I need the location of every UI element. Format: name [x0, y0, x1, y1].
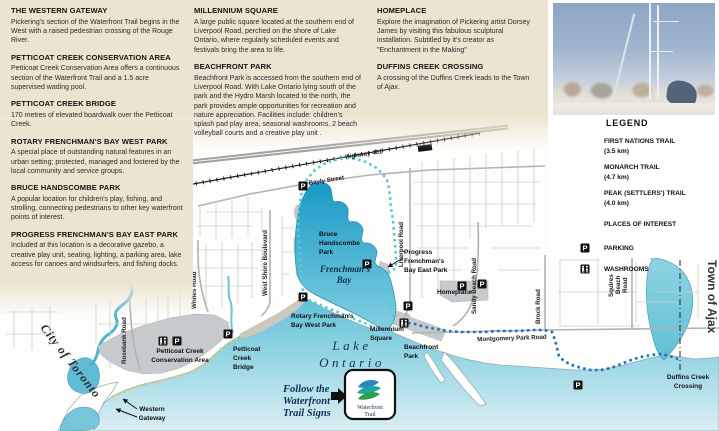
article-body: A large public square located at the sou… [194, 18, 361, 55]
homeplace-label: Homeplace [437, 289, 472, 296]
legend-trail-name: MONARCH TRAIL [604, 164, 660, 171]
article-millennium-square: MILLENNIUM SQUARE A large public square … [194, 6, 361, 55]
sailboat-spreader-icon [653, 21, 679, 22]
article-petticoat-conservation: PETTICOAT CREEK CONSERVATION AREA Pettic… [11, 53, 183, 93]
parking-petticoat-bridge [224, 330, 233, 339]
right-panel: LEGEND FIRST NATIONS TRAIL (3.5 km) MONA… [548, 0, 719, 258]
washrooms-petticoat [159, 337, 168, 346]
article-title: HOMEPLACE [377, 6, 537, 16]
articles-column-east: HOMEPLACE Explore the imagination of Pic… [377, 6, 537, 92]
legend-trail-distance: (4.0 km) [604, 200, 629, 207]
montgomery-park-road-label: Montgomery Park Road [477, 334, 547, 343]
rotary-park-label-1: Rotary Frenchman's [291, 313, 354, 320]
article-title: PROGRESS FRENCHMAN'S BAY EAST PARK [11, 230, 183, 240]
highway-401-label: Highway 401 [345, 148, 384, 161]
article-body: Explore the imagination of Pickering art… [377, 18, 537, 55]
trail-sign-text-2: Trail [364, 412, 376, 418]
frenchmans-bay-label-1: Frenchman's [319, 264, 371, 274]
article-progress-park: PROGRESS FRENCHMAN'S BAY EAST PARK Inclu… [11, 230, 183, 270]
parking-lakeshore-east [574, 381, 583, 390]
articles-column-west: THE WESTERN GATEWAY Pickering's section … [11, 6, 183, 269]
article-duffins-crossing: DUFFINS CREEK CROSSING A crossing of the… [377, 62, 537, 92]
rosebank-road-label: Rosebank Road [121, 317, 128, 364]
marina-photo [553, 3, 715, 115]
follow-sign-text-1: Follow the [282, 384, 330, 395]
follow-sign-text-2: Waterfront [283, 396, 331, 407]
article-body: Pickering's section of the Waterfront Tr… [11, 18, 183, 46]
progress-park-label-2: Frenchman's [404, 258, 445, 265]
brock-road-label: Brock Road [535, 289, 542, 324]
duffins-crossing-label-2: Crossing [674, 383, 702, 390]
article-petticoat-bridge: PETTICOAT CREEK BRIDGE 170 metres of ele… [11, 99, 183, 129]
article-body: A special place of outstanding natural f… [11, 148, 183, 176]
article-body: Included at this location is a decorativ… [11, 241, 183, 269]
waterfront-trail-sign: Waterfront Trail [345, 370, 395, 419]
western-gateway-label-2: Gateway [139, 415, 166, 422]
legend-places-label: PLACES OF INTEREST [604, 220, 676, 230]
millennium-square-label-1: Millennium [370, 326, 404, 333]
legend: LEGEND FIRST NATIONS TRAIL (3.5 km) MONA… [548, 112, 719, 284]
article-bruce-park: BRUCE HANDSCOMBE PARK A popular location… [11, 183, 183, 223]
legend-row-peak: PEAK (SETTLERS') TRAIL (4.0 km) [550, 189, 717, 208]
legend-trail-name: FIRST NATIONS TRAIL [604, 138, 675, 145]
article-title: ROTARY FRENCHMAN'S BAY WEST PARK [11, 137, 183, 147]
beachfront-park-label-2: Park [404, 353, 418, 360]
petticoat-bridge-label-3: Bridge [233, 364, 254, 371]
lake-ontario-label-2: Ontario [319, 355, 385, 370]
legend-trail-distance: (3.5 km) [604, 148, 629, 155]
shore-pond [60, 407, 99, 431]
duffins-crossing-label-1: Duffins Creek [667, 374, 710, 381]
progress-park-label-1: Progress [404, 249, 433, 256]
millennium-square-label-2: Square [370, 335, 392, 342]
legend-row-monarch: MONARCH TRAIL (4.7 km) [550, 163, 717, 182]
legend-trail-name: PEAK (SETTLERS') TRAIL [604, 190, 686, 197]
article-western-gateway: THE WESTERN GATEWAY Pickering's section … [11, 6, 183, 46]
legend-row-parking: PARKING [550, 242, 717, 254]
article-body: 170 metres of elevated boardwalk over th… [11, 111, 183, 130]
article-title: BRUCE HANDSCOMBE PARK [11, 183, 183, 193]
progress-park-label-3: Bay East Park [404, 267, 448, 274]
article-beachfront-park: BEACHFRONT PARK Beachfront Park is acces… [194, 62, 361, 139]
beachfront-park-label-1: Beachfront [404, 344, 439, 351]
petticoat-conservation-label-2: Conservation Area [151, 357, 209, 364]
article-title: BEACHFRONT PARK [194, 62, 361, 72]
articles-column-middle: MILLENNIUM SQUARE A large public square … [194, 6, 361, 139]
sandy-beach-road-label: Sandy Beach Road [471, 258, 478, 314]
article-title: THE WESTERN GATEWAY [11, 6, 183, 16]
petticoat-conservation-label-1: Petticoat Creek [156, 348, 204, 355]
bruce-park-label-1: Bruce [319, 231, 338, 238]
waterfront-trail-brochure: P [0, 0, 719, 431]
petticoat-bridge-label-2: Creek [233, 355, 251, 362]
bruce-park-label-2: Handscombe [319, 240, 360, 247]
legend-row-washrooms: WASHROOMS [550, 263, 717, 275]
article-title: PETTICOAT CREEK CONSERVATION AREA [11, 53, 183, 63]
washrooms-icon [579, 263, 591, 275]
parking-petticoat [173, 337, 182, 346]
article-rotary-park: ROTARY FRENCHMAN'S BAY WEST PARK A speci… [11, 137, 183, 177]
legend-row-first-nations: FIRST NATIONS TRAIL (3.5 km) [550, 137, 717, 156]
article-title: MILLENNIUM SQUARE [194, 6, 361, 16]
west-shore-boulevard-label: West Shore Boulevard [262, 230, 269, 296]
article-title: DUFFINS CREEK CROSSING [377, 62, 537, 72]
legend-trail-distance: (4.7 km) [604, 174, 629, 181]
legend-row-places: PLACES OF INTEREST [550, 215, 717, 233]
frenchmans-bay-label-2: Bay [336, 275, 353, 285]
parking-homeplace-east [478, 280, 487, 289]
bayly-street-road [198, 166, 545, 206]
article-body: A popular location for children's play, … [11, 195, 183, 223]
article-body: A crossing of the Duffins Creek leads to… [377, 74, 537, 93]
legend-title: LEGEND [606, 118, 719, 128]
sailboat-spreader-icon [651, 51, 673, 52]
parking-bayly [299, 182, 308, 191]
article-title: PETTICOAT CREEK BRIDGE [11, 99, 183, 109]
petticoat-bridge-label-1: Petticoat [233, 346, 261, 353]
parking-rotary [299, 293, 308, 302]
parking-icon [579, 242, 591, 254]
follow-sign-text-3: Trail Signs [283, 408, 331, 419]
article-body: Petticoat Creek Conservation Area offers… [11, 64, 183, 92]
legend-parking-label: PARKING [604, 244, 634, 254]
bruce-park-label-3: Park [319, 249, 333, 256]
article-body: Beachfront Park is accessed from the sou… [194, 74, 361, 139]
legend-washrooms-label: WASHROOMS [604, 265, 649, 275]
rotary-park-label-2: Bay West Park [291, 322, 336, 329]
article-homeplace: HOMEPLACE Explore the imagination of Pic… [377, 6, 537, 55]
whites-road-line [198, 240, 208, 312]
lake-ontario-label-1: Lake [331, 338, 371, 353]
trail-sign-text-1: Waterfront [357, 404, 383, 411]
parking-millennium [404, 302, 413, 311]
western-gateway-label-1: Western [139, 406, 165, 413]
